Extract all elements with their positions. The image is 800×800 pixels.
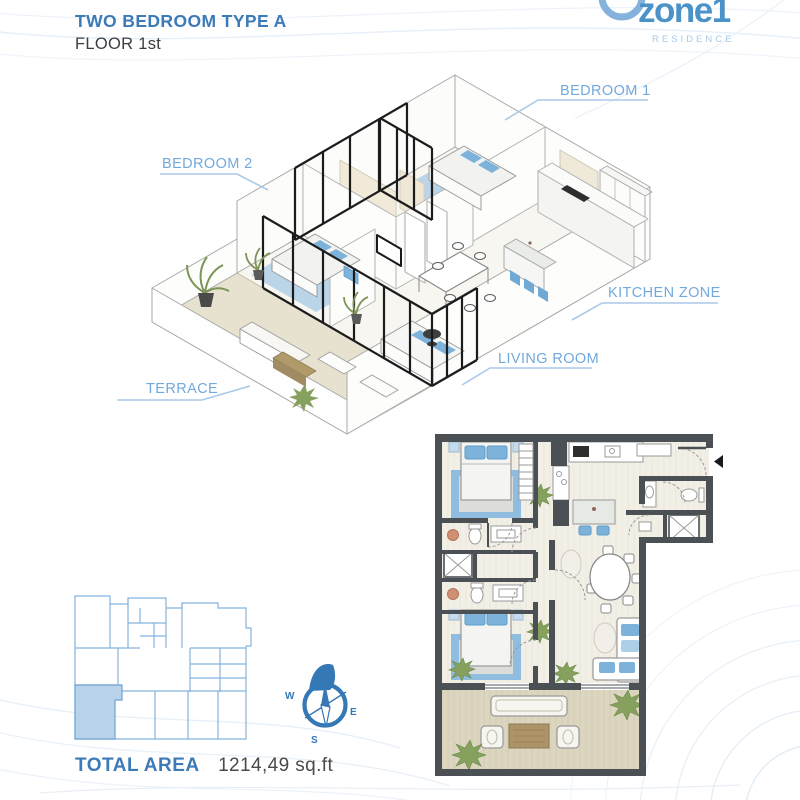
brochure-page: TWO BEDROOM TYPE A FLOOR 1st zone1 RESID… — [0, 0, 800, 800]
key-plan — [70, 588, 260, 750]
total-area-label: TOTAL AREA — [75, 755, 200, 776]
compass-south-label: S — [311, 735, 318, 746]
entry-arrow-icon — [714, 455, 723, 468]
label-bedroom-1: BEDROOM 1 — [560, 83, 651, 99]
label-kitchen-zone: KITCHEN ZONE — [608, 285, 721, 301]
compass-icon: N W E S — [283, 655, 367, 751]
wardrobe — [519, 444, 533, 500]
page-title: TWO BEDROOM TYPE A — [75, 11, 287, 32]
key-plan-highlighted-unit — [75, 685, 122, 739]
logo-residence-text: RESIDENCE — [652, 34, 734, 45]
label-bedroom-2: BEDROOM 2 — [162, 156, 253, 172]
label-terrace: TERRACE — [146, 381, 218, 397]
compass-north-label: N — [321, 673, 330, 687]
header: TWO BEDROOM TYPE A FLOOR 1st — [75, 11, 287, 54]
floor-label: FLOOR 1st — [75, 35, 287, 54]
isometric-apartment — [152, 75, 652, 434]
total-area: TOTAL AREA 1214,49 sq.ft — [75, 755, 333, 777]
brand-logo: zone1 RESIDENCE — [596, 0, 756, 52]
floorplan-2d — [433, 434, 729, 787]
compass-west-label: W — [285, 691, 295, 702]
logo-wordmark: zone1 — [638, 0, 730, 31]
compass-east-label: E — [350, 707, 357, 718]
total-area-value: 1214,49 sq.ft — [218, 755, 333, 776]
label-living-room: LIVING ROOM — [498, 351, 599, 367]
